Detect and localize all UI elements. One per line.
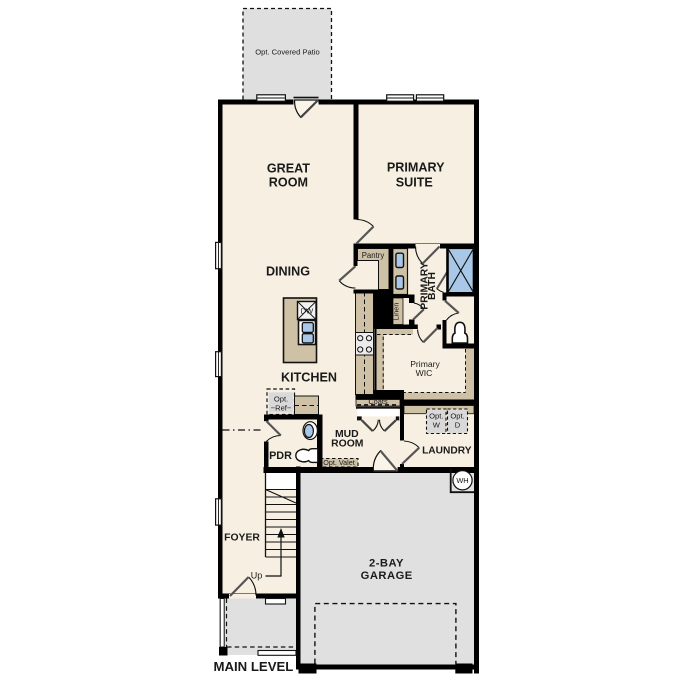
svg-text:Opt.: Opt. — [450, 411, 464, 420]
svg-text:Linen: Linen — [392, 303, 401, 321]
svg-text:SUITE: SUITE — [396, 176, 433, 190]
svg-text:WIC: WIC — [416, 368, 433, 378]
svg-text:Opt.: Opt. — [274, 394, 288, 403]
svg-text:ROOM: ROOM — [269, 175, 308, 189]
svg-text:WH: WH — [456, 476, 468, 485]
svg-text:Opt. Covered Patio: Opt. Covered Patio — [255, 48, 320, 57]
svg-text:MAIN LEVEL: MAIN LEVEL — [214, 659, 294, 674]
svg-text:−Ref−: −Ref− — [271, 403, 292, 412]
svg-text:Opt. Valet: Opt. Valet — [323, 458, 354, 467]
svg-text:Pantry: Pantry — [362, 251, 385, 260]
svg-text:Opt.: Opt. — [429, 411, 443, 420]
svg-text:D: D — [455, 420, 461, 429]
svg-text:DINING: DINING — [266, 265, 310, 279]
svg-text:DW: DW — [300, 307, 313, 316]
svg-text:Up: Up — [251, 571, 263, 581]
svg-text:PRIMARY: PRIMARY — [387, 161, 445, 175]
svg-text:W: W — [433, 420, 441, 429]
svg-text:KITCHEN: KITCHEN — [281, 371, 337, 385]
svg-text:LAUNDRY: LAUNDRY — [422, 446, 472, 457]
svg-text:2-BAY: 2-BAY — [369, 557, 404, 569]
svg-text:BATH: BATH — [427, 272, 438, 300]
svg-text:GARAGE: GARAGE — [361, 570, 413, 582]
svg-text:FOYER: FOYER — [224, 533, 260, 544]
svg-text:GREAT: GREAT — [267, 161, 310, 175]
svg-text:ROOM: ROOM — [331, 439, 363, 450]
svg-text:PDR: PDR — [269, 450, 292, 462]
